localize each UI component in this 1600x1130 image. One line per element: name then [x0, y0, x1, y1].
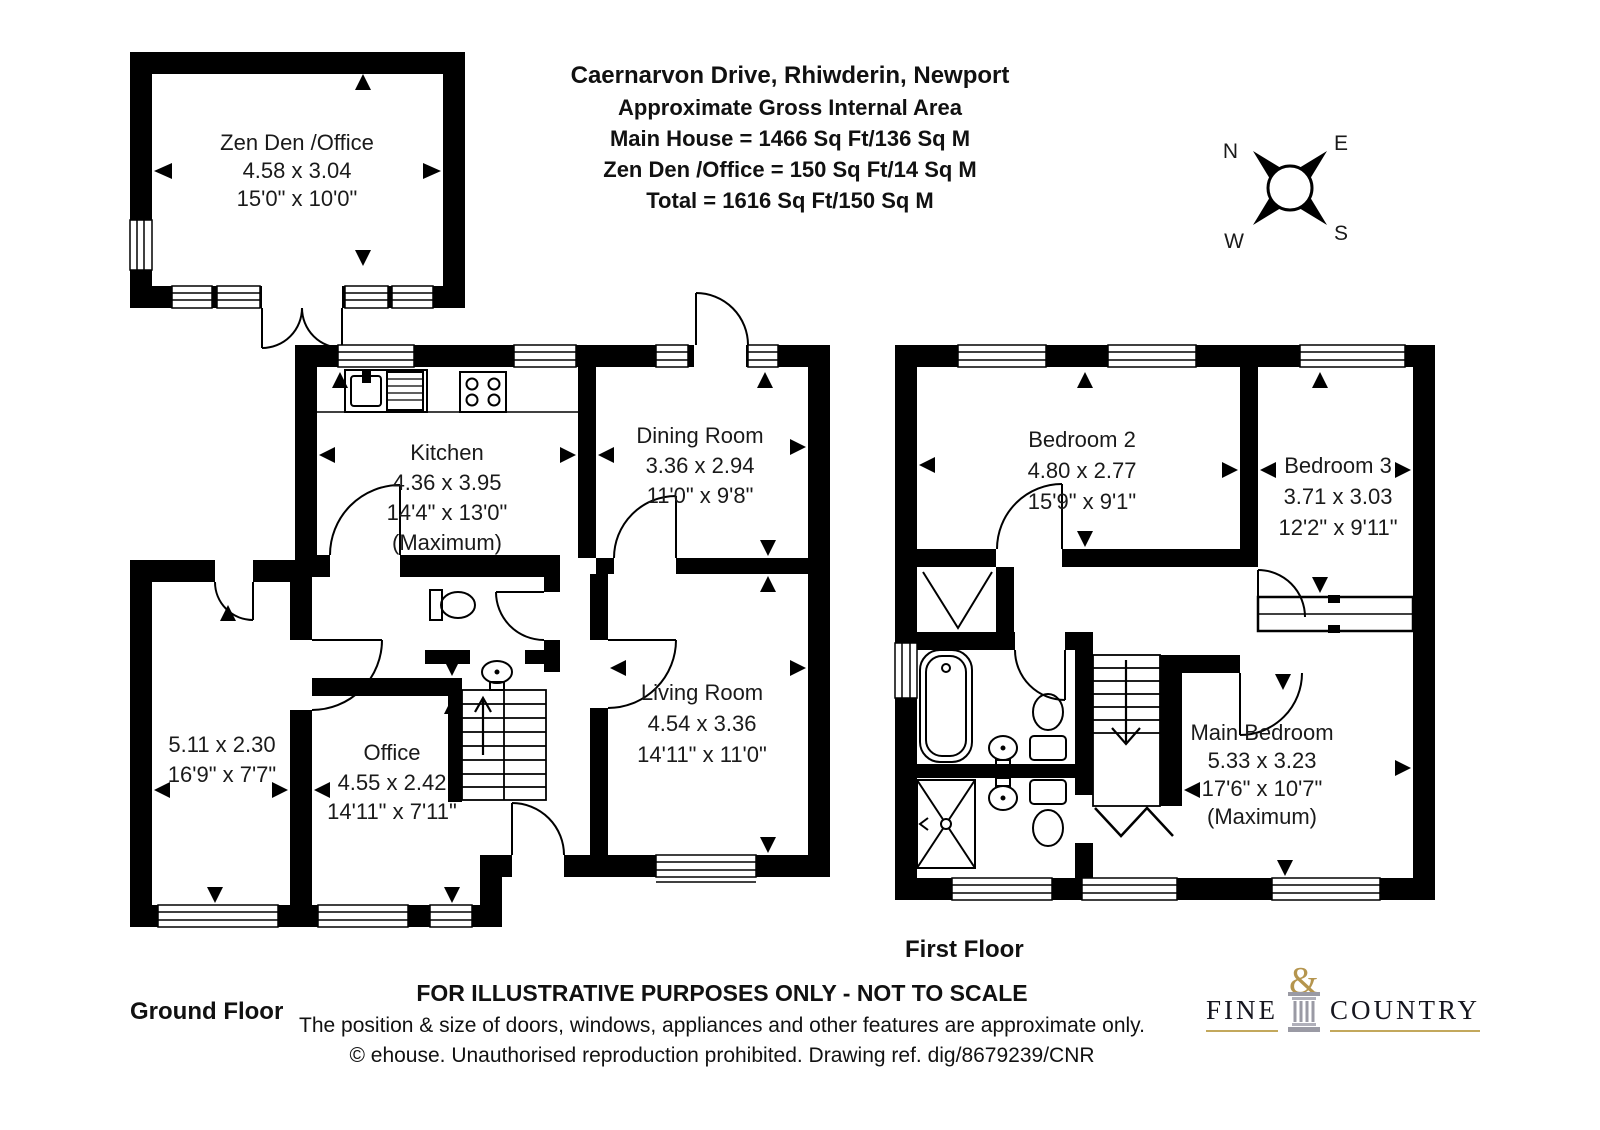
kitchen-name: Kitchen	[410, 440, 483, 465]
office-label: Office 4.55 x 2.42 14'11" x 7'11"	[327, 740, 457, 824]
compass-east-label: E	[1334, 132, 1348, 155]
kitchen-hob-icon	[460, 372, 506, 412]
dining-metric: 3.36 x 2.94	[646, 453, 755, 478]
main-bedroom-name: Main Bedroom	[1190, 720, 1333, 745]
stair-break-line	[1095, 808, 1173, 836]
main-bedroom-note: (Maximum)	[1207, 804, 1317, 829]
zen-den-metric: 4.58 x 3.04	[243, 158, 352, 183]
store-room-label: 5.11 x 2.30 16'9" x 7'7"	[168, 732, 276, 787]
shower-sink-icon	[989, 778, 1017, 810]
kitchen-imperial: 14'4" x 13'0"	[387, 500, 508, 525]
stairs-up	[462, 690, 546, 800]
compass-north-label: N	[1223, 140, 1238, 163]
first-floor-openings	[1075, 795, 1093, 843]
bedroom2-metric: 4.80 x 2.77	[1028, 458, 1137, 483]
shower-toilet-icon	[1030, 780, 1066, 846]
bedroom2-label: Bedroom 2 4.80 x 2.77 15'9" x 9'1"	[1028, 427, 1137, 514]
living-name: Living Room	[641, 680, 763, 705]
zen-den-outbuilding: Zen Den /Office 4.58 x 3.04 15'0" x 10'0…	[130, 52, 465, 348]
living-metric: 4.54 x 3.36	[648, 711, 757, 736]
bathroom-sink-icon	[989, 736, 1017, 768]
first-floor-windows	[895, 345, 1405, 900]
compass-rose: N E S W	[1223, 132, 1348, 253]
zen-den-french-doors	[262, 286, 342, 348]
bedroom3-imperial: 12'2" x 9'11"	[1278, 515, 1397, 540]
compass-west-label: W	[1224, 230, 1244, 253]
office-name: Office	[363, 740, 420, 765]
kitchen-label: Kitchen 4.36 x 3.95 14'4" x 13'0" (Maxim…	[387, 440, 508, 555]
bedroom2-imperial: 15'9" x 9'1"	[1028, 489, 1136, 514]
kitchen-sink-icon	[345, 370, 427, 412]
zen-den-name: Zen Den /Office	[220, 130, 374, 155]
dining-name: Dining Room	[636, 423, 763, 448]
floor-plan-drawing: N E S W	[0, 0, 1600, 1130]
kitchen-metric: 4.36 x 3.95	[393, 470, 502, 495]
ground-floor-plan: Kitchen 4.36 x 3.95 14'4" x 13'0" (Maxim…	[130, 293, 830, 927]
bedroom2-name: Bedroom 2	[1028, 427, 1136, 452]
bedroom3-name: Bedroom 3	[1284, 453, 1392, 478]
bedroom3-wardrobe	[1258, 595, 1413, 633]
bedroom3-label: Bedroom 3 3.71 x 3.03 12'2" x 9'11"	[1278, 453, 1397, 540]
main-bedroom-metric: 5.33 x 3.23	[1208, 748, 1317, 773]
bathroom-toilet-icon	[1030, 694, 1066, 760]
kitchen-note: (Maximum)	[392, 530, 502, 555]
zen-den-label: Zen Den /Office 4.58 x 3.04 15'0" x 10'0…	[220, 130, 374, 211]
dining-imperial: 11'0" x 9'8"	[647, 483, 754, 508]
store-imperial: 16'9" x 7'7"	[168, 762, 276, 787]
living-imperial: 14'11" x 11'0"	[637, 742, 767, 767]
compass-south-label: S	[1334, 222, 1348, 245]
office-imperial: 14'11" x 7'11"	[327, 799, 457, 824]
wc-fixtures	[430, 590, 512, 690]
living-room-label: Living Room 4.54 x 3.36 14'11" x 11'0"	[637, 680, 767, 767]
dining-room-label: Dining Room 3.36 x 2.94 11'0" x 9'8"	[636, 423, 763, 508]
cupboard-bifold-door	[923, 572, 992, 628]
kitchen-counter	[317, 370, 578, 412]
store-metric: 5.11 x 2.30	[168, 732, 275, 757]
bedroom3-metric: 3.71 x 3.03	[1284, 484, 1393, 509]
shower-icon	[917, 780, 975, 868]
office-metric: 4.55 x 2.42	[338, 770, 447, 795]
bath-icon	[920, 650, 972, 762]
main-bedroom-label: Main Bedroom 5.33 x 3.23 17'6" x 10'7" (…	[1190, 720, 1333, 829]
bathroom-fixtures	[917, 650, 1066, 868]
first-floor-plan: Bedroom 2 4.80 x 2.77 15'9" x 9'1" Bedro…	[895, 345, 1435, 900]
zen-den-imperial: 15'0" x 10'0"	[237, 186, 358, 211]
main-bedroom-imperial: 17'6" x 10'7"	[1202, 776, 1323, 801]
